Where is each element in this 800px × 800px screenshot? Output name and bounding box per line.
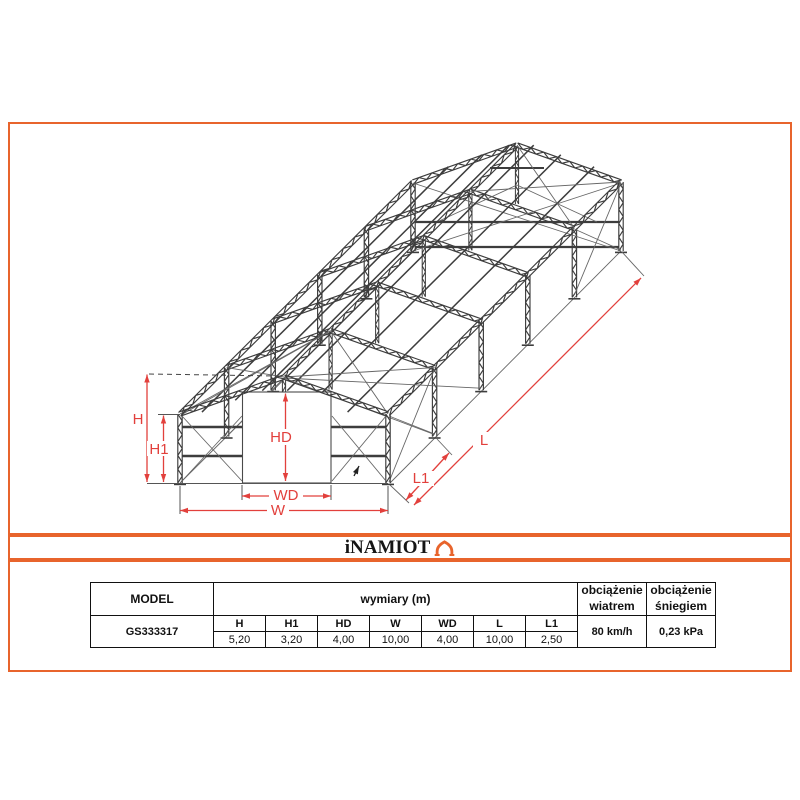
snow-value-cell: 0,23 kPa (647, 616, 716, 648)
structure-diagram: H H1 HD WD W L L1 (10, 124, 790, 533)
dim-label-l1: L1 (413, 470, 430, 487)
dim-col-header: W (370, 616, 422, 632)
wind-value-cell: 80 km/h (578, 616, 647, 648)
model-header-cell: MODEL (91, 583, 214, 616)
brand-logo-text: iNAMIOT (345, 538, 431, 557)
dim-label-hd: HD (270, 429, 292, 446)
dim-value-cell: 2,50 (526, 632, 578, 648)
spec-panel: MODEL wymiary (m) obciążenie wiatrem obc… (8, 560, 792, 672)
dim-col-header: HD (318, 616, 370, 632)
snow-header-line2: śniegiem (647, 599, 715, 615)
dim-value-cell: 4,00 (318, 632, 370, 648)
dim-value-cell: 5,20 (214, 632, 266, 648)
dim-value-cell: 4,00 (422, 632, 474, 648)
dim-label-w: W (271, 502, 286, 519)
dimensions-header-cell: wymiary (m) (214, 583, 578, 616)
spec-sheet-page: { "frame_border_color": "#e8642c", "draw… (0, 0, 800, 800)
dim-col-header: L1 (526, 616, 578, 632)
dim-label-h1: H1 (149, 441, 168, 458)
model-value-cell: GS333317 (91, 616, 214, 648)
truss-structure (144, 143, 644, 514)
spec-table: MODEL wymiary (m) obciążenie wiatrem obc… (90, 582, 716, 648)
dim-label-l: L (480, 432, 488, 449)
wind-header-cell: obciążenie wiatrem (578, 583, 647, 616)
dim-label-h: H (133, 411, 144, 428)
drawing-frame: H H1 HD WD W L L1 (8, 122, 792, 535)
dim-col-header: WD (422, 616, 474, 632)
tent-arch-icon (434, 539, 455, 556)
dim-col-header: H (214, 616, 266, 632)
dim-col-header: H1 (266, 616, 318, 632)
dim-value-cell: 3,20 (266, 632, 318, 648)
dim-value-cell: 10,00 (474, 632, 526, 648)
dim-col-header: L (474, 616, 526, 632)
wind-header-line2: wiatrem (578, 599, 646, 615)
dim-value-cell: 10,00 (370, 632, 422, 648)
snow-header-line1: obciążenie (647, 583, 715, 599)
snow-header-cell: obciążenie śniegiem (647, 583, 716, 616)
wind-header-line1: obciążenie (578, 583, 646, 599)
brand-banner: iNAMIOT (8, 535, 792, 560)
